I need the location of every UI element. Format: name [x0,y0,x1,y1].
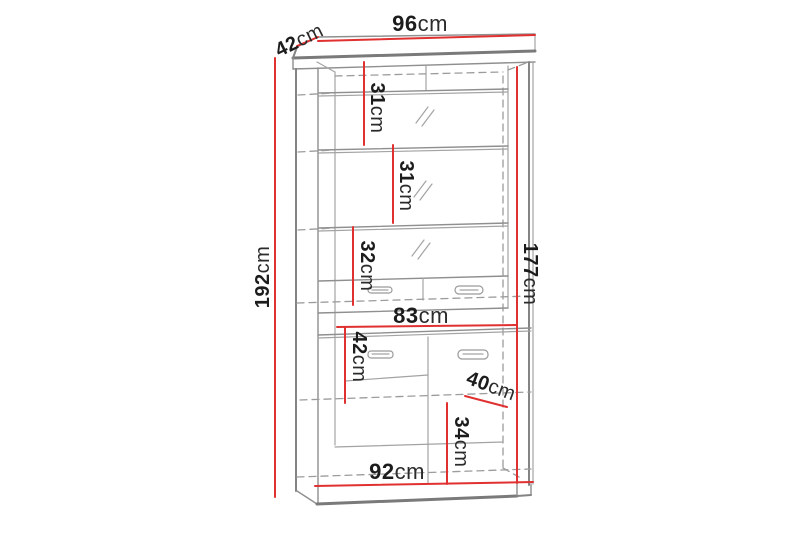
cabinet-side-edges [296,62,533,503]
dim-label-shelf-gap-1: 31cm [366,83,388,134]
dim-label-interior-height: 177cm [519,243,541,306]
dimension-lines [275,35,535,497]
dim-label-total-height: 192cm [252,246,274,309]
dim-label-top-width: 96cm [392,11,448,36]
dim-label-top-depth: 42cm [272,20,327,62]
cabinet-diagram: 96cm 42cm 31cm 31cm 32cm 192cm 177cm 83c… [0,0,800,533]
dim-label-door-lower: 34cm [450,417,472,468]
dim-label-base-width: 92cm [369,459,425,484]
product-dimension-image: 96cm 42cm 31cm 31cm 32cm 192cm 177cm 83c… [0,0,800,533]
dim-label-lower-depth: 40cm [463,367,518,405]
dim-label-door-upper: 42cm [348,332,370,383]
dim-label-shelf-gap-3: 32cm [356,241,378,292]
cabinet-base [297,484,531,504]
dim-label-interior-width: 83cm [393,303,449,328]
drawer-band [297,276,531,303]
dim-label-shelf-gap-2: 31cm [395,161,417,212]
